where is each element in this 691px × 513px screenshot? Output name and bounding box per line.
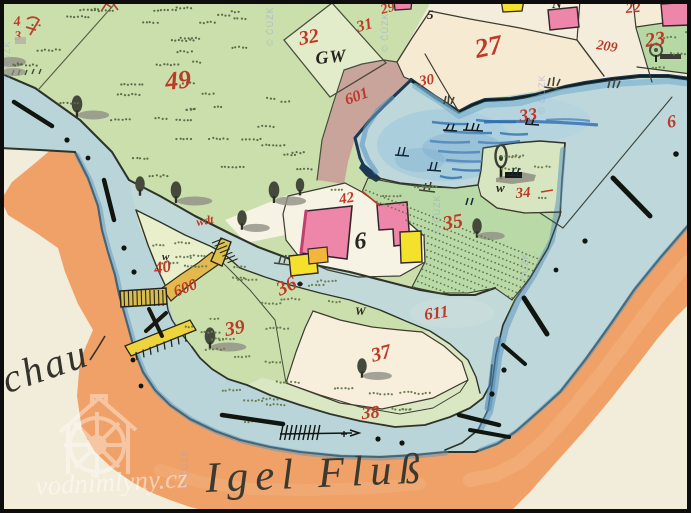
svg-text:w: w [496, 180, 505, 195]
svg-text:© ČÚZK: © ČÚZK [537, 74, 547, 114]
svg-text:38: 38 [360, 401, 381, 423]
svg-text:209: 209 [594, 38, 618, 56]
svg-text:23: 23 [643, 27, 667, 52]
svg-text:39: 39 [222, 316, 247, 341]
svg-text:GW: GW [315, 45, 349, 68]
svg-text:42: 42 [337, 189, 356, 208]
svg-text:33: 33 [517, 104, 539, 126]
svg-text:32: 32 [296, 25, 321, 50]
svg-text:35: 35 [440, 210, 465, 235]
svg-text:5: 5 [427, 7, 434, 22]
svg-text:49: 49 [163, 64, 193, 96]
svg-text:Igel Fluß: Igel Fluß [203, 445, 428, 502]
svg-text:30: 30 [417, 71, 436, 90]
svg-text:6: 6 [353, 228, 367, 255]
svg-text:© ČÚZK: © ČÚZK [520, 252, 530, 292]
svg-text:611: 611 [423, 302, 450, 324]
svg-text:34: 34 [514, 185, 532, 202]
svg-text:W: W [355, 304, 367, 318]
svg-text:© ČÚZK: © ČÚZK [432, 194, 442, 234]
svg-text:© ČÚZK: © ČÚZK [380, 12, 390, 52]
svg-text:© ČÚZK: © ČÚZK [265, 6, 275, 46]
svg-text:w: w [162, 251, 170, 263]
